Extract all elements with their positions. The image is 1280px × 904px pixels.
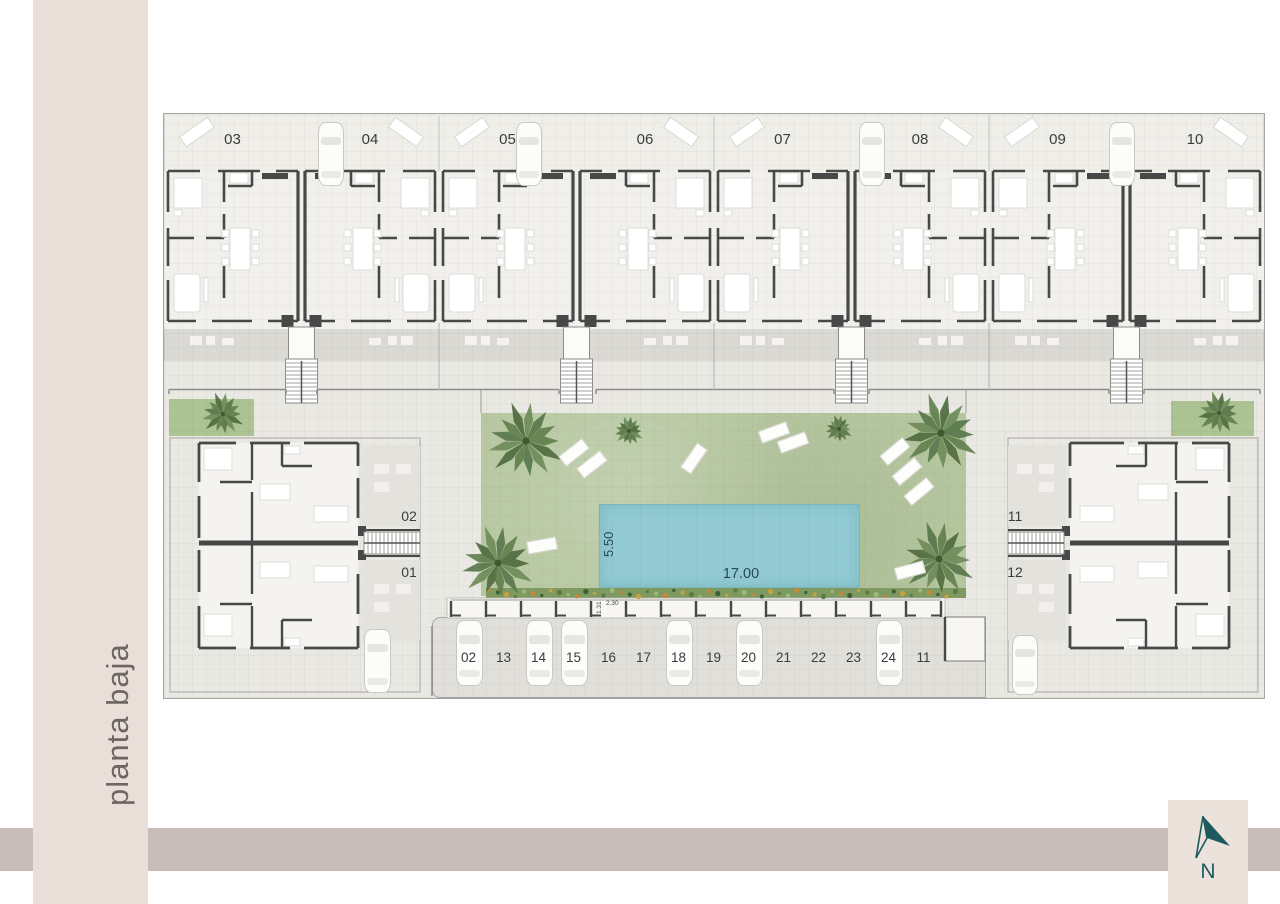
pool-length-dimension: 17.00 (709, 566, 773, 582)
north-label: N (1168, 860, 1248, 884)
unit-label-09: 09 (989, 132, 1126, 147)
parking-space-13-label: 13 (487, 651, 521, 665)
parking-space-14-label: 14 (522, 651, 556, 665)
car-icon (364, 629, 391, 693)
stall-depth-dimension: 1.31 (596, 601, 603, 614)
parking-space-11-label: 11 (907, 651, 941, 665)
plan-title: planta baja (100, 636, 146, 806)
parking-space-20-label: 20 (732, 651, 766, 665)
unit-label-12: 12 (1000, 565, 1030, 579)
parking-space-23-label: 23 (837, 651, 871, 665)
car-icon (516, 122, 542, 186)
parking-space-21-label: 21 (767, 651, 801, 665)
parking-space-22-label: 22 (802, 651, 836, 665)
unit-label-10: 10 (1127, 132, 1264, 147)
car-icon (1012, 635, 1038, 695)
parking-space-18-label: 18 (662, 651, 696, 665)
parking-space-15-label: 15 (557, 651, 591, 665)
bottom-band (0, 828, 1280, 871)
unit-label-11: 11 (1000, 509, 1030, 523)
site-plan: 0304050607080910020111120213141516171819… (163, 113, 1265, 699)
unit-label-01: 01 (394, 565, 424, 579)
north-arrow-card: N (1168, 800, 1248, 904)
parking-space-16-label: 16 (592, 651, 626, 665)
car-icon (1109, 122, 1135, 186)
north-arrow-icon (1186, 808, 1234, 864)
parking-space-17-label: 17 (627, 651, 661, 665)
unit-label-07: 07 (714, 132, 851, 147)
parking-space-19-label: 19 (697, 651, 731, 665)
parking-space-02-label: 02 (452, 651, 486, 665)
car-icon (859, 122, 885, 186)
pool-width-dimension: 5.50 (601, 532, 616, 557)
parking-space-24-label: 24 (872, 651, 906, 665)
unit-label-02: 02 (394, 509, 424, 523)
stall-width-dimension: 2.30 (606, 600, 619, 607)
unit-label-06: 06 (577, 132, 714, 147)
unit-label-05: 05 (439, 132, 576, 147)
car-icon (318, 122, 344, 186)
plan-linework (164, 114, 1264, 698)
unit-label-03: 03 (164, 132, 301, 147)
floor-plan-page: { "page": { "title_vertical": "planta ba… (0, 0, 1280, 904)
